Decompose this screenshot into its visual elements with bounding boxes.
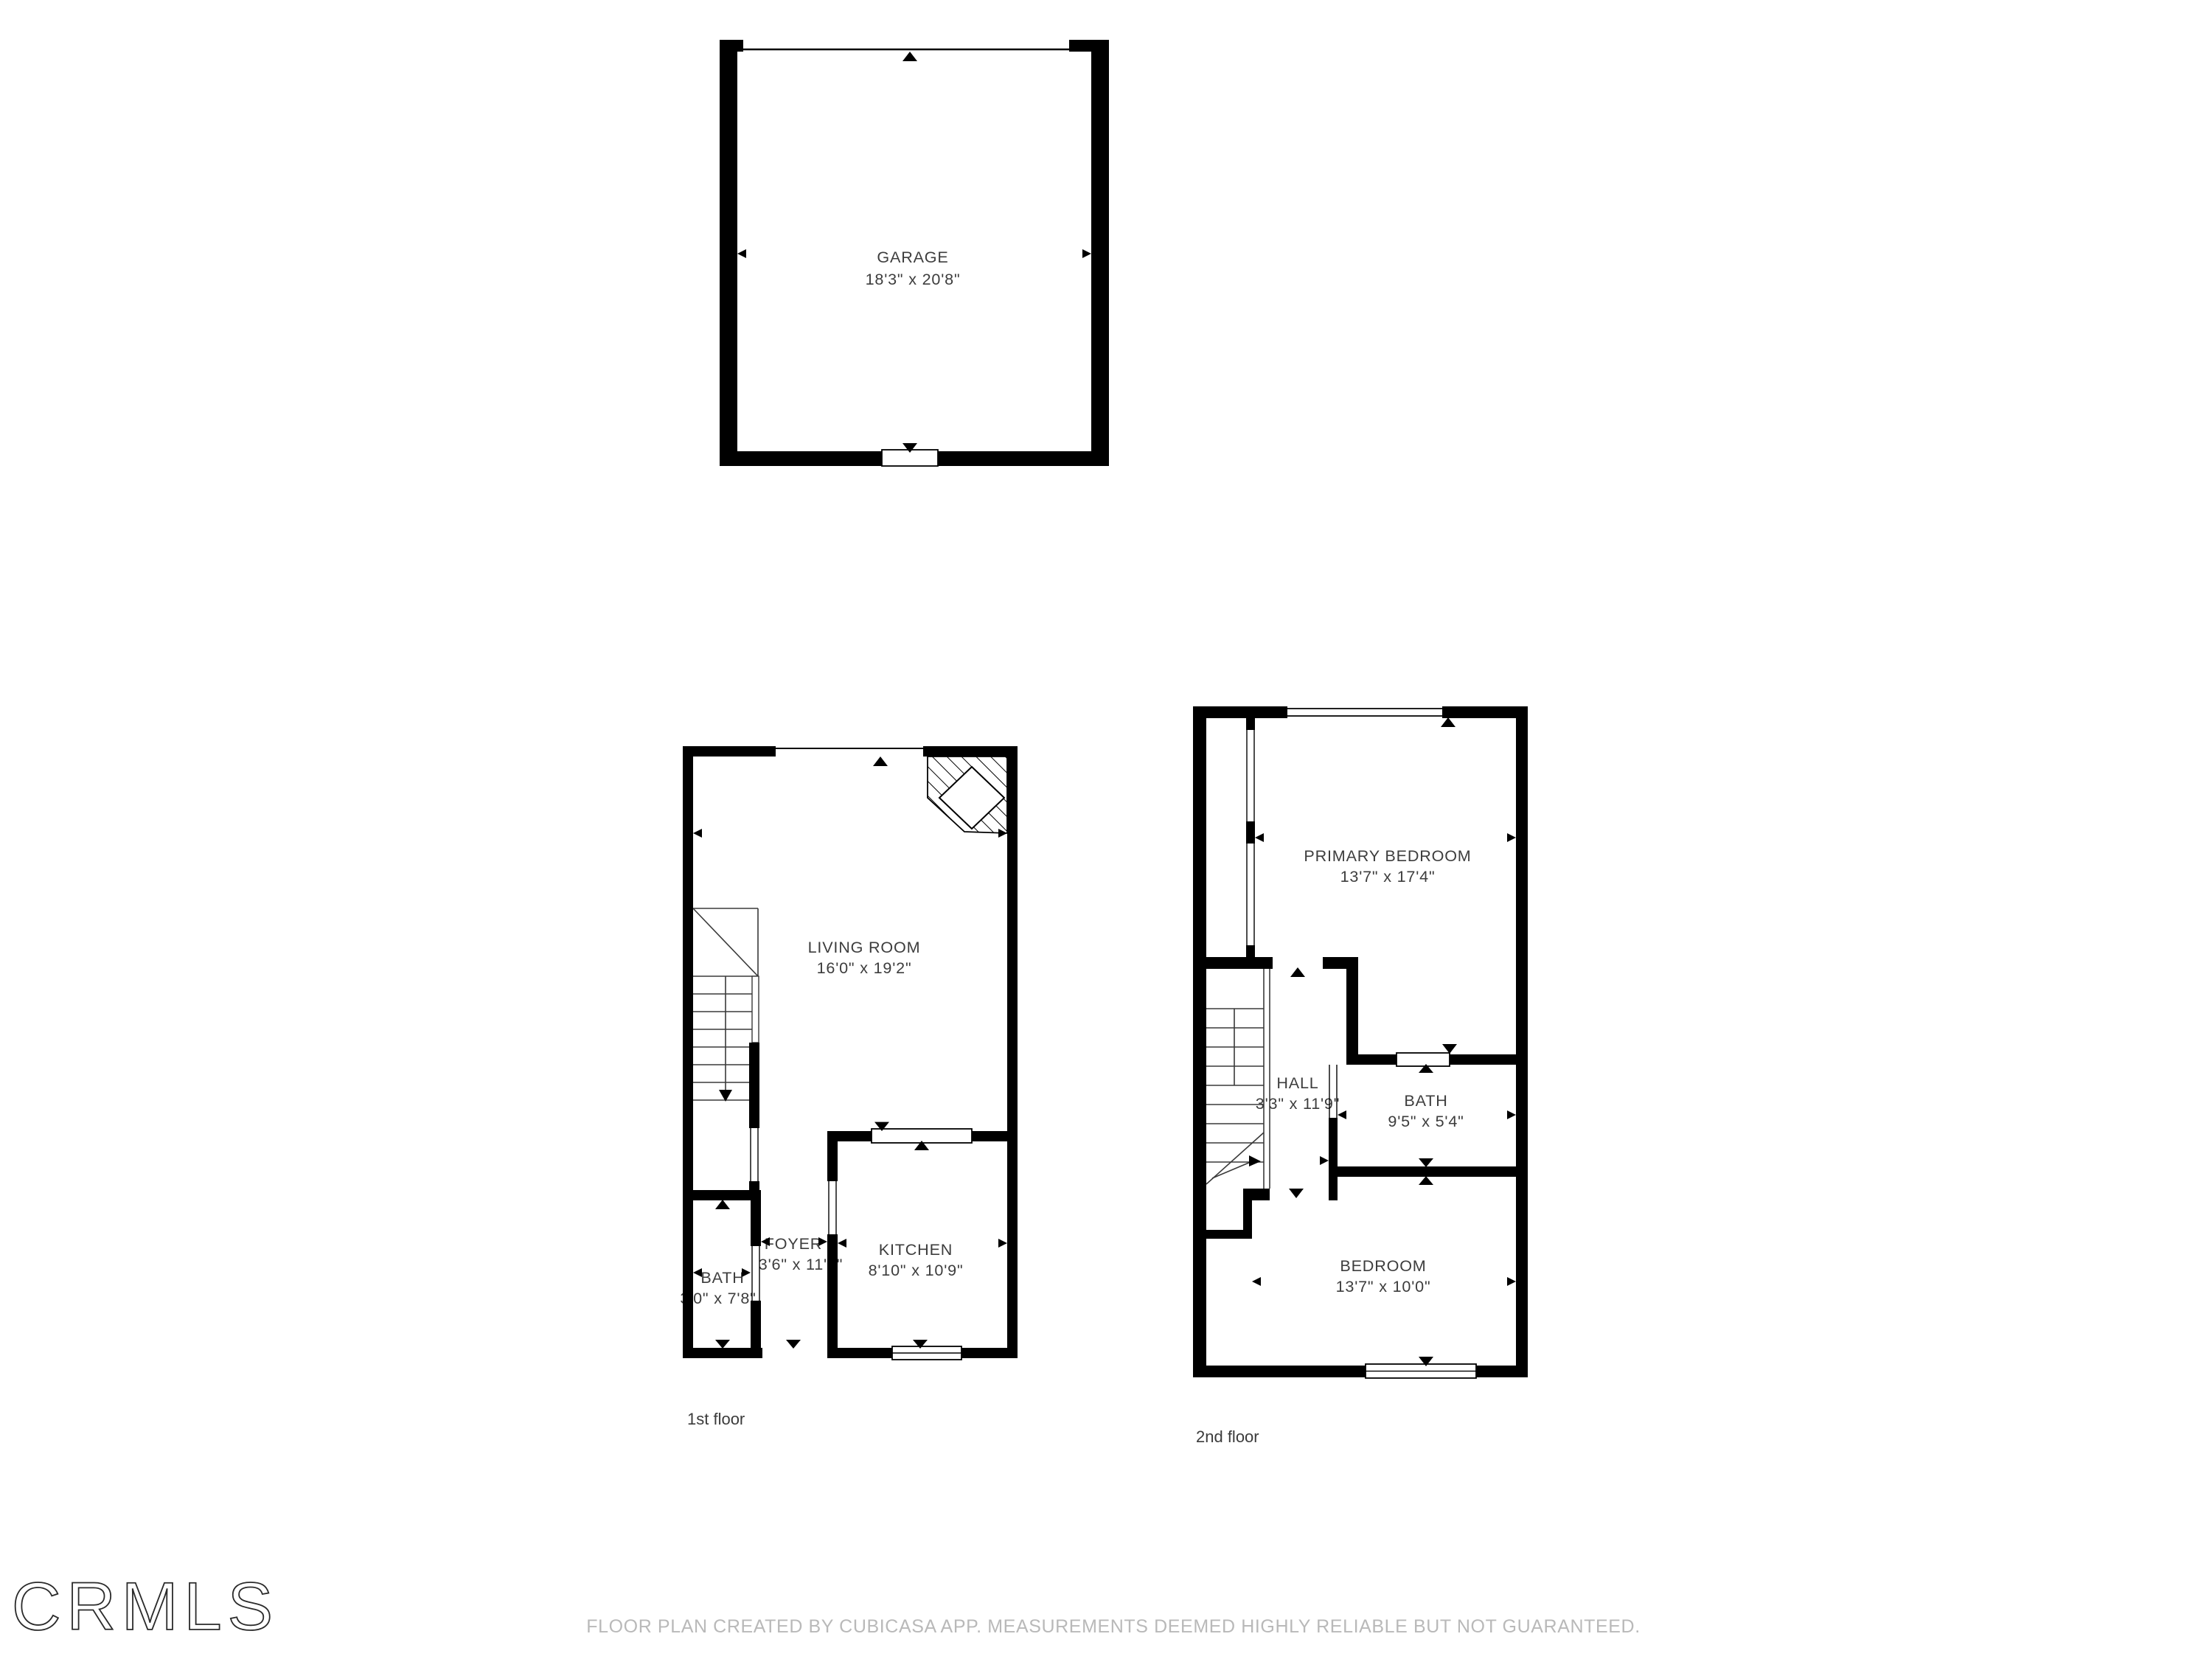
bedroom-window	[1366, 1364, 1476, 1378]
primary-bedroom-window	[1287, 709, 1442, 716]
measure-arrow-up-icon	[1290, 967, 1305, 977]
measure-arrow-up-icon	[715, 1200, 730, 1209]
room-dims-garage: 18'3" x 20'8"	[866, 270, 961, 288]
measure-arrow-right-icon	[1320, 1156, 1329, 1165]
room-dims-hall: 3'3" x 11'9"	[1256, 1094, 1340, 1113]
measure-arrow-right-icon	[1507, 1277, 1516, 1286]
measure-arrow-up-icon	[1419, 1176, 1433, 1185]
garage-plan: GARAGE 18'3" x 20'8"	[720, 40, 1109, 466]
measure-arrow-down-icon	[786, 1340, 801, 1349]
room-label-foyer: FOYER	[765, 1234, 822, 1253]
room-label-hall: HALL	[1276, 1074, 1318, 1092]
measure-arrow-left-icon	[693, 1268, 702, 1277]
first-floor-walls	[683, 746, 1018, 1358]
room-label-primary-bedroom: PRIMARY BEDROOM	[1304, 846, 1471, 865]
measure-arrow-left-icon	[737, 249, 746, 258]
measure-arrow-up-icon	[873, 757, 888, 766]
second-floor-plan: PRIMARY BEDROOM 13'7" x 17'4" HALL 3'3" …	[1193, 706, 1528, 1378]
measure-arrow-down-icon	[1442, 1044, 1457, 1054]
kitchen-window	[892, 1346, 961, 1360]
interior-door-openings	[751, 1128, 836, 1301]
room-dims-living-room: 16'0" x 19'2"	[817, 959, 912, 977]
room-label-living-room: LIVING ROOM	[808, 938, 921, 956]
measure-arrow-left-icon	[1252, 1277, 1261, 1286]
stair-direction-arrow-icon	[1249, 1155, 1261, 1166]
measure-arrow-right-icon	[818, 1237, 827, 1246]
room-label-kitchen: KITCHEN	[879, 1240, 953, 1259]
measure-arrow-down-icon	[715, 1340, 730, 1349]
measure-arrow-right-icon	[1507, 833, 1516, 842]
measure-arrow-up-icon	[1441, 717, 1455, 727]
room-label-bedroom: BEDROOM	[1340, 1256, 1426, 1275]
bath-passthrough	[1397, 1053, 1450, 1066]
footer-disclaimer: FLOOR PLAN CREATED BY CUBICASA APP. MEAS…	[586, 1616, 1641, 1637]
measure-arrow-right-icon	[1082, 249, 1091, 258]
measure-arrow-left-icon	[1255, 833, 1264, 842]
room-label-bath-1: BATH	[700, 1268, 744, 1287]
crmls-logo: CRMLS	[12, 1569, 279, 1644]
measure-arrow-up-icon	[902, 52, 917, 61]
measure-arrow-left-icon	[693, 829, 702, 838]
second-floor-label: 2nd floor	[1196, 1427, 1259, 1446]
room-label-garage: GARAGE	[877, 248, 948, 266]
room-dims-primary-bedroom: 13'7" x 17'4"	[1340, 867, 1436, 886]
first-floor-plan: LIVING ROOM 16'0" x 19'2" FOYER 3'6" x 1…	[680, 746, 1018, 1360]
measure-arrow-left-icon	[838, 1239, 846, 1248]
staircase-first-floor	[693, 908, 759, 1102]
room-dims-kitchen: 8'10" x 10'9"	[869, 1261, 964, 1279]
measure-arrow-right-icon	[742, 1268, 751, 1277]
measure-arrow-right-icon	[1507, 1110, 1516, 1119]
first-floor-label: 1st floor	[687, 1410, 745, 1428]
fireplace-hatch	[928, 757, 1007, 833]
room-dims-bath-2: 9'5" x 5'4"	[1388, 1112, 1464, 1130]
measure-arrow-down-icon	[1419, 1158, 1433, 1167]
floorplan-page: GARAGE 18'3" x 20'8"	[0, 0, 2212, 1659]
room-dims-bedroom: 13'7" x 10'0"	[1336, 1277, 1431, 1295]
floorplan-canvas: GARAGE 18'3" x 20'8"	[0, 0, 2212, 1659]
measure-arrow-right-icon	[998, 1239, 1007, 1248]
measure-arrow-down-icon	[1289, 1189, 1304, 1198]
staircase-second-floor	[1205, 969, 1270, 1189]
room-label-bath-2: BATH	[1404, 1091, 1447, 1110]
first-floor-measure-markers	[693, 757, 1007, 1349]
